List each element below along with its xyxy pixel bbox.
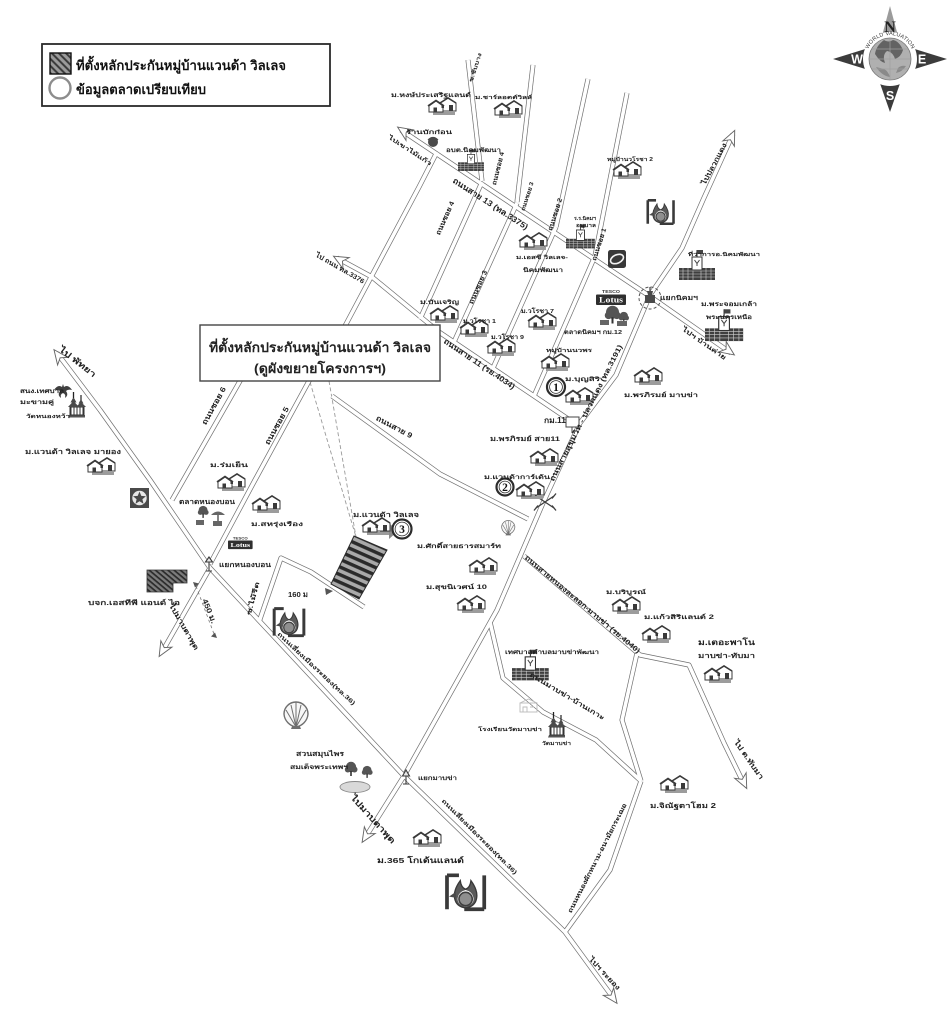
svg-text:ม.พระจอมเกล้า: ม.พระจอมเกล้า xyxy=(701,300,757,308)
svg-text:W: W xyxy=(851,53,863,67)
svg-text:S: S xyxy=(886,89,894,103)
svg-text:หมู่บ้านนวพร: หมู่บ้านนวพร xyxy=(546,346,592,355)
svg-text:อนุบาล: อนุบาล xyxy=(576,223,596,229)
svg-text:ม.365 โกเด้นแลนด์: ม.365 โกเด้นแลนด์ xyxy=(377,855,464,865)
svg-text:ม.วโรชา 1: ม.วโรชา 1 xyxy=(463,317,497,325)
svg-text:ม.ชาร์ลอตต์วิลล์: ม.ชาร์ลอตต์วิลล์ xyxy=(475,94,532,101)
svg-text:ม.วโรชา 7: ม.วโรชา 7 xyxy=(521,307,554,315)
svg-text:หมู่บ้านวโรชา 2: หมู่บ้านวโรชา 2 xyxy=(607,156,653,164)
svg-text:เทศบาลตำบลมาบข่าพัฒนา: เทศบาลตำบลมาบข่าพัฒนา xyxy=(505,649,599,656)
svg-text:พระนครเหนือ: พระนครเหนือ xyxy=(706,314,752,321)
svg-text:สนง.เทศบาล: สนง.เทศบาล xyxy=(20,388,64,395)
svg-text:ม.สหรุ่งเรือง: ม.สหรุ่งเรือง xyxy=(251,521,303,528)
svg-text:2: 2 xyxy=(502,482,508,494)
svg-text:ม.พรภิรมย์ สาย11: ม.พรภิรมย์ สาย11 xyxy=(490,435,560,443)
svg-text:ตลาดนิคมฯ กม.12: ตลาดนิคมฯ กม.12 xyxy=(564,328,623,336)
svg-text:ม.จิณัฐตาโฮม 2: ม.จิณัฐตาโฮม 2 xyxy=(650,801,716,811)
svg-text:ม.แก้วสิริแลนด์ 2: ม.แก้วสิริแลนด์ 2 xyxy=(644,613,715,621)
svg-text:มะขามคู่: มะขามคู่ xyxy=(20,399,54,407)
svg-text:แยกมาบข่า: แยกมาบข่า xyxy=(418,775,457,782)
svg-text:กม.11: กม.11 xyxy=(544,416,567,425)
svg-text:ม.พรภิรมย์ มาบข่า: ม.พรภิรมย์ มาบข่า xyxy=(624,391,699,399)
svg-text:สวนสมุนไพร: สวนสมุนไพร xyxy=(296,749,345,758)
svg-text:แยกนิคมฯ: แยกนิคมฯ xyxy=(660,294,699,302)
svg-text:ร.ร.นิคมฯ: ร.ร.นิคมฯ xyxy=(574,215,596,222)
svg-text:ที่ตั้งหลักประกันหมู่บ้านแวนด้: ที่ตั้งหลักประกันหมู่บ้านแวนด้า วิลเลจ xyxy=(209,337,431,356)
svg-text:1: 1 xyxy=(553,382,559,394)
svg-text:อบต.นิคมพัฒนา: อบต.นิคมพัฒนา xyxy=(446,146,501,154)
svg-text:ม.สุขนิเวศน์ 10: ม.สุขนิเวศน์ 10 xyxy=(426,583,488,591)
svg-text:3: 3 xyxy=(399,524,405,536)
svg-text:(ดูผังขยายโครงการฯ): (ดูผังขยายโครงการฯ) xyxy=(254,360,386,377)
svg-text:ม.บุญสิริ: ม.บุญสิริ xyxy=(565,376,600,383)
svg-text:ม.เตอะพาโน: ม.เตอะพาโน xyxy=(698,637,756,647)
svg-text:นิคมพัฒนา: นิคมพัฒนา xyxy=(523,266,563,274)
svg-text:ม.แวนด้า วิลเลจ: ม.แวนด้า วิลเลจ xyxy=(353,510,419,519)
svg-text:วัดมาบข่า: วัดมาบข่า xyxy=(542,740,571,747)
svg-text:ข้อมูลตลาดเปรียบเทียบ: ข้อมูลตลาดเปรียบเทียบ xyxy=(76,82,206,98)
svg-text:โรงเรียนวัดมาบข่า: โรงเรียนวัดมาบข่า xyxy=(476,726,542,733)
svg-text:ที่ว่าการอ.นิคมพัฒนา: ที่ว่าการอ.นิคมพัฒนา xyxy=(688,250,760,258)
svg-text:N: N xyxy=(884,19,896,36)
svg-text:ตลาดหนองบอน: ตลาดหนองบอน xyxy=(179,499,235,506)
svg-text:วัดหนองหว้า: วัดหนองหว้า xyxy=(26,412,70,420)
svg-text:ม.วโรชา 9: ม.วโรชา 9 xyxy=(491,333,525,341)
svg-text:ที่ตั้งหลักประกันหมู่บ้านแวนด้: ที่ตั้งหลักประกันหมู่บ้านแวนด้า วิลเลจ xyxy=(76,55,286,74)
svg-text:มาบข่า-ทับมา: มาบข่า-ทับมา xyxy=(698,652,755,660)
svg-text:ม.แวนด้า วิลเลจ มายอง: ม.แวนด้า วิลเลจ มายอง xyxy=(25,447,121,456)
svg-text:ร้านบักก๋อน: ร้านบักก๋อน xyxy=(406,128,452,136)
svg-text:ม.หงษ์ประเสริฐแลนด์: ม.หงษ์ประเสริฐแลนด์ xyxy=(391,91,471,99)
svg-text:E: E xyxy=(918,53,926,67)
svg-text:แยกหนองบอน: แยกหนองบอน xyxy=(219,562,271,569)
svg-text:ม.บันเจริญ: ม.บันเจริญ xyxy=(420,299,459,306)
svg-text:ม.บริบูรณ์: ม.บริบูรณ์ xyxy=(606,588,647,597)
svg-text:ม.แวนด้าการ์เด้น: ม.แวนด้าการ์เด้น xyxy=(484,473,550,481)
svg-text:บจก.เอสทีพี แอนด์ ไอ: บจก.เอสทีพี แอนด์ ไอ xyxy=(88,598,180,607)
svg-text:ม.เอสซี วิลเลจ-: ม.เอสซี วิลเลจ- xyxy=(516,254,568,261)
svg-text:160 ม: 160 ม xyxy=(288,590,308,599)
